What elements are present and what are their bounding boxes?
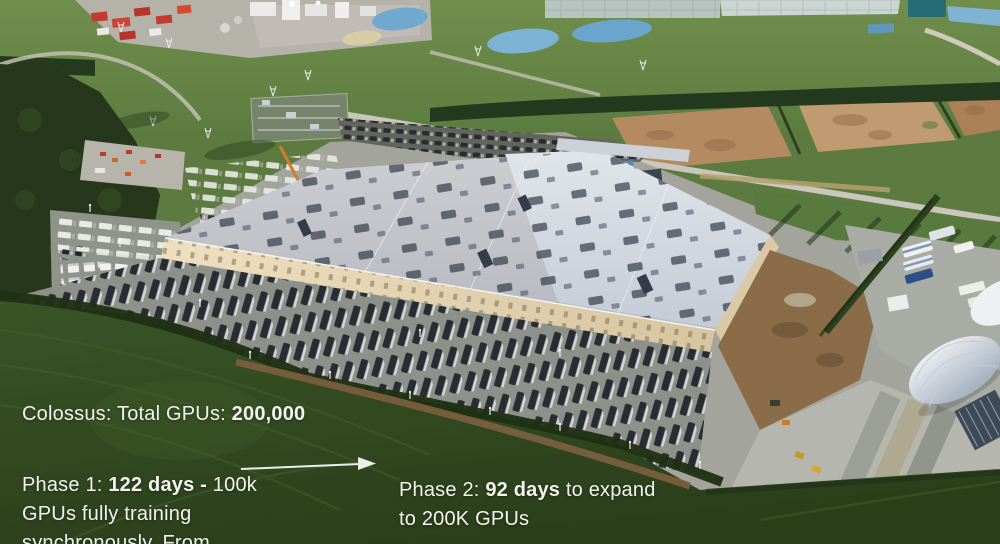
slide-colossus-aerial: Colossus: Total GPUs: 200,000 Phase 1: 1… bbox=[0, 0, 1000, 544]
substation bbox=[251, 94, 349, 143]
aerial-photo bbox=[0, 0, 1000, 544]
